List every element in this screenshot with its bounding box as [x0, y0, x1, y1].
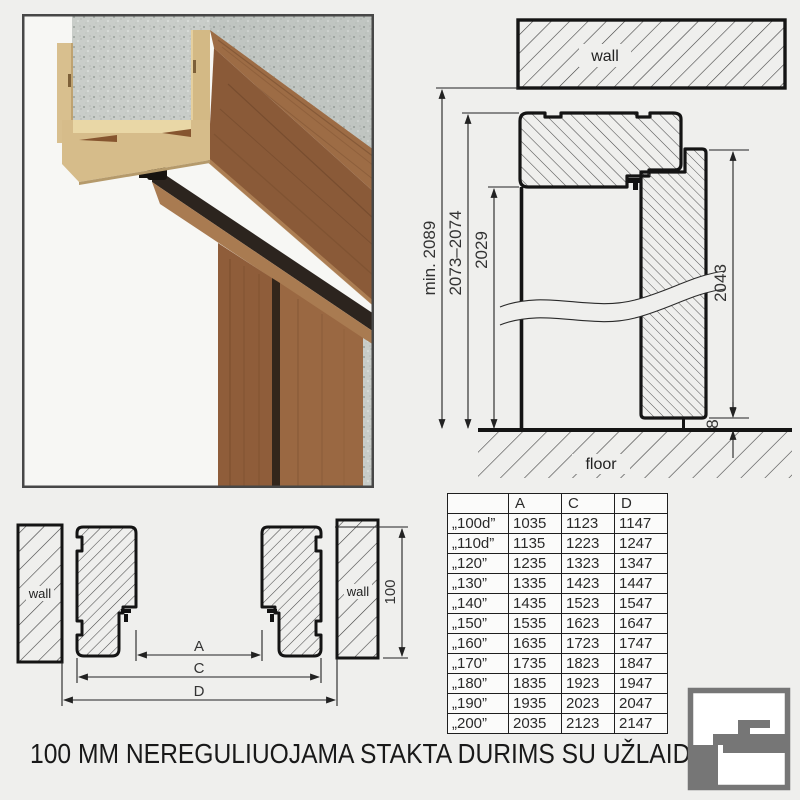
size-name-cell: „130” [448, 574, 509, 594]
size-value-cell: 2023 [562, 694, 615, 714]
horizontal-section-diagram: wall wall A [5, 510, 430, 715]
size-value-cell: 1735 [509, 654, 562, 674]
size-name-cell: „180” [448, 674, 509, 694]
size-value-cell: 1835 [509, 674, 562, 694]
size-value-cell: 1147 [615, 514, 668, 534]
size-value-cell: 1235 [509, 554, 562, 574]
size-value-cell: 2147 [615, 714, 668, 734]
col-header-d: D [615, 494, 668, 514]
size-name-cell: „190” [448, 694, 509, 714]
size-name-cell: „200” [448, 714, 509, 734]
size-name-cell: „120” [448, 554, 509, 574]
brand-logo-icon [687, 687, 791, 791]
size-value-cell: 1923 [562, 674, 615, 694]
size-value-cell: 1035 [509, 514, 562, 534]
dim-frame-outer-height: 2073–2074 [446, 210, 465, 295]
size-value-cell: 1747 [615, 634, 668, 654]
page-title: 100 MM NEREGULIUOJAMA STAKTA DURIMS SU U… [30, 738, 707, 770]
post-seal-groove [272, 278, 280, 488]
size-table: A C D „100d”103511231147„110d”1135122312… [447, 493, 668, 734]
col-header-name [448, 494, 509, 514]
size-value-cell: 1623 [562, 614, 615, 634]
size-value-cell: 1435 [509, 594, 562, 614]
size-value-cell: 1335 [509, 574, 562, 594]
table-row: „150”153516231647 [448, 614, 668, 634]
col-header-c: C [562, 494, 615, 514]
size-value-cell: 1935 [509, 694, 562, 714]
svg-text:wall: wall [346, 584, 370, 599]
col-header-a: A [509, 494, 562, 514]
vertical-section-diagram: wall floor [415, 10, 800, 490]
size-value-cell: 1135 [509, 534, 562, 554]
size-value-cell: 1347 [615, 554, 668, 574]
table-row: „160”163517231747 [448, 634, 668, 654]
size-name-cell: „170” [448, 654, 509, 674]
wall-left: wall [18, 525, 62, 662]
size-value-cell: 1535 [509, 614, 562, 634]
table-row: „100d”103511231147 [448, 514, 668, 534]
jamb-profile-left [77, 527, 136, 656]
size-value-cell: 1947 [615, 674, 668, 694]
dim-c-label: C [194, 660, 205, 677]
size-value-cell: 1823 [562, 654, 615, 674]
spec-sheet: wall floor [0, 0, 800, 800]
frame-corner-3d-render [22, 14, 374, 488]
size-value-cell: 1523 [562, 594, 615, 614]
size-name-cell: „150” [448, 614, 509, 634]
size-value-cell: 1723 [562, 634, 615, 654]
dimension-labels-acd: A C D [191, 638, 207, 700]
size-value-cell: 1247 [615, 534, 668, 554]
floor: floor [478, 430, 792, 478]
dim-total-height: min. 2089 [420, 221, 439, 296]
table-row: „110d”113512231247 [448, 534, 668, 554]
size-value-cell: 1423 [562, 574, 615, 594]
jamb-seal-left [121, 609, 131, 613]
table-header-row: A C D [448, 494, 668, 514]
table-row: „170”173518231847 [448, 654, 668, 674]
size-name-cell: „140” [448, 594, 509, 614]
jamb-profile-right [262, 527, 321, 656]
size-value-cell: 1647 [615, 614, 668, 634]
size-name-cell: „160” [448, 634, 509, 654]
table-row: „120”123513231347 [448, 554, 668, 574]
table-row: „130”133514231447 [448, 574, 668, 594]
wall-right: wall [337, 520, 378, 658]
size-value-cell: 1323 [562, 554, 615, 574]
size-value-cell: 1447 [615, 574, 668, 594]
dim-floor-gap: 8 [703, 419, 722, 428]
size-value-cell: 2035 [509, 714, 562, 734]
dim-clear-opening-height: 2029 [472, 231, 491, 269]
table-row: „190”193520232047 [448, 694, 668, 714]
table-row: „140”143515231547 [448, 594, 668, 614]
floor-label: floor [585, 456, 617, 473]
size-value-cell: 1123 [562, 514, 615, 534]
table-row: „200”203521232147 [448, 714, 668, 734]
wall-label: wall [590, 48, 619, 65]
size-value-cell: 1223 [562, 534, 615, 554]
size-name-cell: „110d” [448, 534, 509, 554]
dim-frame-depth: 100 [382, 579, 399, 604]
svg-text:wall: wall [28, 586, 52, 601]
dim-a-label: A [194, 638, 204, 655]
dim-door-height: 2043 [711, 264, 730, 302]
size-value-cell: 2123 [562, 714, 615, 734]
wall-block: wall [518, 20, 785, 88]
size-value-cell: 1547 [615, 594, 668, 614]
dim-d-label: D [194, 683, 205, 700]
size-value-cell: 2047 [615, 694, 668, 714]
size-value-cell: 1847 [615, 654, 668, 674]
dimension-lines-right [709, 150, 749, 458]
jamb-seal-right [267, 609, 277, 613]
table-row: „180”183519231947 [448, 674, 668, 694]
size-value-cell: 1635 [509, 634, 562, 654]
size-name-cell: „100d” [448, 514, 509, 534]
